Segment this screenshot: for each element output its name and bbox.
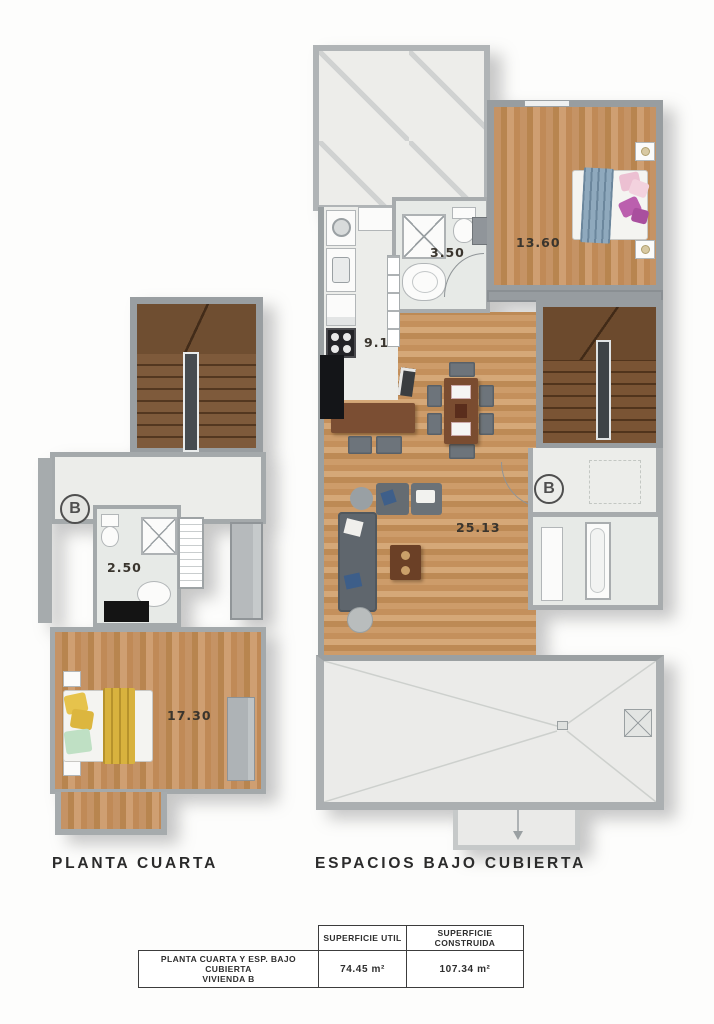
pillow-icon: [70, 708, 95, 730]
kitchen-base-counter: [320, 355, 344, 419]
roof-area-top: [313, 45, 490, 211]
exterior-wall-stub: [38, 458, 52, 623]
counter-cabinet: [326, 294, 356, 326]
stool-icon: [348, 436, 372, 454]
lamp-icon: [641, 147, 650, 156]
left-plan-title: PLANTA CUARTA: [52, 855, 218, 873]
bathroom-right-area: 3.50: [430, 245, 465, 260]
stove-icon: [326, 328, 356, 358]
upper-cabinet: [358, 207, 394, 231]
stair-stringer: [183, 352, 199, 452]
dining-table: [444, 378, 478, 444]
chair-icon: [449, 444, 475, 459]
chimney-shaft-icon: [624, 709, 652, 737]
round-table-small: [347, 607, 373, 633]
window-strip: [524, 100, 570, 107]
header-superficie-construida: SUPERFICIE CONSTRUIDA: [407, 926, 523, 950]
living-room-area: 25.13: [456, 520, 501, 535]
nightstand-icon: [63, 760, 81, 776]
skylight-dashed: [589, 460, 641, 504]
bedroom-right-area: 13.60: [516, 235, 561, 250]
plan-espacios-bajo-cubierta: 25.13 9.10: [313, 42, 665, 854]
bedroom-left: 17.30: [50, 627, 266, 794]
bathtub-icon: [585, 522, 611, 600]
table-value-row: 74.45 m² 107.34 m²: [318, 950, 524, 988]
stairwell-right: [536, 300, 663, 450]
plate-icon: [451, 422, 471, 436]
armchair-icon: [411, 483, 442, 515]
centerpiece-icon: [455, 404, 467, 418]
plan-planta-cuarta: B 2.50 17.30: [38, 295, 268, 840]
chair-icon: [479, 413, 494, 435]
pillow-icon: [64, 728, 93, 754]
terrace-step-out: [453, 805, 580, 850]
value-superficie-util: 74.45 m²: [319, 951, 407, 987]
row-label-line1: PLANTA CUARTA Y ESP. BAJO CUBIERTA: [139, 954, 318, 974]
burner-icon: [331, 333, 339, 341]
pillow-icon: [380, 489, 396, 505]
cushion-icon: [416, 490, 435, 503]
pantry-shelves: [387, 255, 400, 347]
stair-stringer: [596, 340, 611, 440]
terrace: [316, 655, 664, 810]
sofa: [338, 512, 377, 612]
bidet-basin-icon: [412, 271, 438, 293]
tv-icon: [397, 367, 416, 397]
chair-icon: [427, 385, 442, 407]
coffee-table: [390, 545, 421, 580]
pillow-icon: [344, 572, 363, 589]
chair-icon: [479, 385, 494, 407]
unit-badge-right: B: [534, 474, 564, 504]
bathroom-right: 3.50: [392, 197, 490, 313]
bedroom-right: 13.60: [487, 100, 663, 292]
bathroom-left: 2.50: [93, 505, 181, 627]
burner-icon: [331, 345, 339, 353]
value-superficie-construida: 107.34 m²: [407, 951, 523, 987]
bed-blanket-yellow: [103, 688, 135, 764]
stool-icon: [376, 436, 402, 454]
roof-slope-lines: [324, 661, 656, 802]
tub-basin-icon: [590, 528, 605, 593]
duct-shaft: [472, 217, 488, 245]
right-plan-title: ESPACIOS BAJO CUBIERTA: [315, 855, 586, 873]
nightstand-icon: [63, 671, 81, 687]
burner-icon: [343, 333, 351, 341]
chair-icon: [449, 362, 475, 377]
stair-winders: [137, 304, 256, 354]
bathroom-lower-right: [528, 512, 663, 610]
decor-dot: [401, 551, 410, 560]
washing-machine-icon: [326, 210, 356, 246]
bed-blanket-blue: [580, 167, 614, 243]
chair-icon: [427, 413, 442, 435]
closet: [178, 517, 204, 589]
bidet-icon: [402, 263, 446, 301]
bedroom-left-area: 17.30: [167, 708, 212, 723]
lamp-icon: [641, 245, 650, 254]
floorplan-sheet: B 2.50 17.30: [0, 0, 714, 1024]
vanity-icon: [541, 527, 563, 601]
side-table-round: [350, 487, 373, 510]
unit-badge-left: B: [60, 494, 90, 524]
burner-icon: [343, 345, 351, 353]
header-superficie-util: SUPERFICIE UTIL: [319, 926, 407, 950]
table-row-label: PLANTA CUARTA Y ESP. BAJO CUBIERTA VIVIE…: [138, 950, 318, 988]
wardrobe-hall: [230, 522, 263, 620]
table-header-row: SUPERFICIE UTIL SUPERFICIE CONSTRUIDA: [318, 925, 524, 950]
toilet-bowl-icon: [101, 526, 119, 547]
unit-badge-right-label: B: [543, 480, 555, 498]
sink-unit-icon: [326, 248, 356, 292]
bedroom-notch: [55, 792, 167, 835]
bathroom-left-area: 2.50: [107, 560, 142, 575]
shower-icon: [141, 517, 177, 555]
plate-icon: [451, 385, 471, 399]
washer-drum-icon: [332, 218, 351, 237]
row-label-line2: VIVIENDA B: [202, 974, 254, 984]
unit-badge-left-label: B: [69, 500, 81, 518]
landing-right: B: [528, 448, 663, 514]
wardrobe-bedroom: [227, 697, 255, 781]
pillow-icon: [343, 518, 363, 537]
vanity-counter: [104, 601, 149, 622]
down-arrow-icon: [508, 809, 528, 841]
nightstand-icon: [635, 240, 655, 259]
summary-table: SUPERFICIE UTIL SUPERFICIE CONSTRUIDA PL…: [138, 925, 524, 988]
decor-dot: [401, 566, 410, 575]
sink-basin-icon: [332, 257, 350, 283]
nightstand-icon: [635, 142, 655, 161]
armchair-icon: [376, 483, 409, 515]
drain-icon: [557, 721, 568, 730]
